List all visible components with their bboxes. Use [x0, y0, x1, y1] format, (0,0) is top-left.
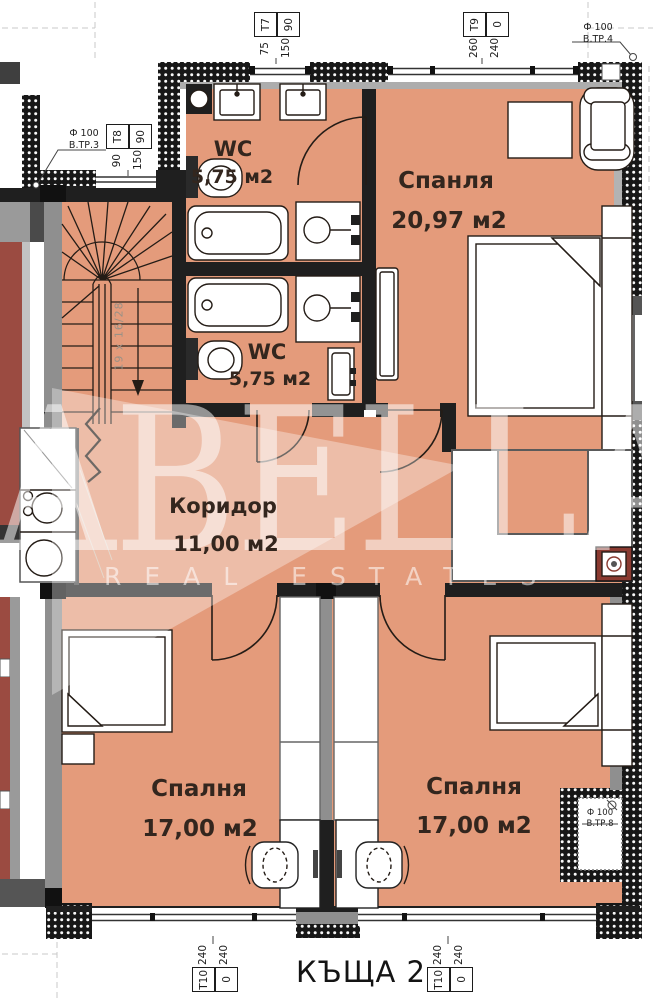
vent-label-vtr3: Ф 100 В.ТР.3: [58, 128, 110, 152]
wardrobe-strip: [334, 597, 378, 820]
tag-height: 240: [489, 38, 501, 58]
room-area-bedroom-right: 17,00 м2: [416, 813, 532, 839]
tag-width: 90: [111, 154, 123, 167]
room-label-bedroom-left: Спалня: [151, 776, 247, 802]
vanity-sink: [296, 276, 360, 342]
chimney: [596, 547, 632, 581]
vent-id: В.ТР.3: [58, 140, 110, 152]
room-area-bedroom-left: 17,00 м2: [142, 816, 258, 842]
small-sink: [328, 348, 356, 400]
room-area-bedroom-top: 20,97 м2: [391, 208, 507, 234]
headboard-panel: [602, 604, 632, 766]
tag-sill: 0: [456, 976, 468, 983]
double-bed: [468, 236, 602, 416]
vent-label-vtr8: Ф 100 В.ТР.8: [580, 808, 620, 829]
tag-type: Т10: [198, 970, 210, 990]
vent-size: Ф 100: [580, 808, 620, 819]
vent-id: В.ТР.8: [580, 819, 620, 830]
vent-label-vtr4: Ф 100 В.ТР.4: [570, 22, 626, 46]
sink: [214, 84, 260, 120]
plan-title: КЪЩА 2: [296, 955, 426, 989]
floor-plan: ABELLA REAL ESTATES WC 5,75 м2 WC 5,75 м…: [0, 0, 655, 1000]
room-label-bedroom-right: Спалня: [426, 774, 522, 800]
stairs-dimension-note: 19 х 16/28: [113, 301, 126, 370]
chair: [246, 842, 299, 888]
sink: [280, 84, 326, 120]
window-tag-t8: Т8 90 90 150: [106, 124, 152, 172]
tag-height: 240: [218, 945, 230, 965]
tag-type: Т8: [112, 130, 124, 143]
room-label-bedroom-top: Спанля: [398, 168, 494, 194]
vent-size: Ф 100: [58, 128, 110, 140]
tag-width: 260: [468, 38, 480, 58]
bathtub: [188, 206, 288, 260]
room-area-wc-top: 5,75 м2: [191, 166, 273, 188]
armchair: [580, 88, 634, 170]
tag-height: 240: [453, 945, 465, 965]
tag-sill: 90: [283, 18, 295, 31]
chair: [356, 842, 409, 888]
boiler: [186, 84, 212, 114]
wardrobe-strip: [280, 597, 320, 820]
tag-height: 150: [132, 150, 144, 170]
window-tag-t10-left: 240 240 Т10 0: [192, 944, 238, 992]
dresser: [376, 268, 398, 380]
tag-sill: 0: [221, 976, 233, 983]
window-tag-t7: Т7 90 75 150: [254, 12, 300, 60]
vent-id: В.ТР.4: [570, 34, 626, 46]
tag-width: 240: [432, 945, 444, 965]
headboard-panel: [602, 206, 632, 450]
tag-sill: 0: [492, 21, 504, 28]
tag-width: 240: [197, 945, 209, 965]
tag-type: Т7: [260, 18, 272, 31]
room-label-corridor: Коридор: [169, 494, 277, 518]
room-label-wc-bottom: WC: [248, 340, 287, 364]
bathtub: [188, 278, 288, 332]
tag-type: Т10: [433, 970, 445, 990]
tag-sill: 90: [135, 130, 147, 143]
window-tag-t10-right: 240 240 Т10 0: [427, 944, 473, 992]
single-bed: [490, 636, 602, 730]
vanity-sink: [296, 202, 360, 260]
vent-size: Ф 100: [570, 22, 626, 34]
room-area-corridor: 11,00 м2: [173, 532, 279, 556]
tag-height: 150: [280, 38, 292, 58]
tag-type: Т9: [469, 18, 481, 31]
room-area-wc-bottom: 5,75 м2: [229, 368, 311, 390]
window-tag-t9: Т9 0 260 240: [463, 12, 509, 60]
table: [508, 102, 572, 158]
tag-width: 75: [259, 42, 271, 55]
room-label-wc-top: WC: [214, 137, 253, 161]
